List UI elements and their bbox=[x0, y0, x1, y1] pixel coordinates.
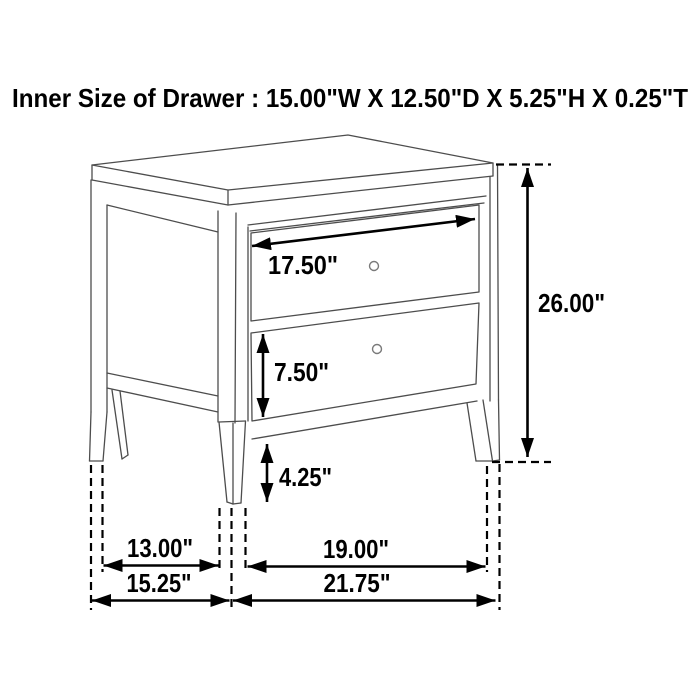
page-title: Inner Size of Drawer : 15.00"W X 12.50"D… bbox=[12, 83, 688, 113]
label-drawer-front-height: 7.50" bbox=[274, 357, 329, 387]
nightstand-dimension-diagram: Inner Size of Drawer : 15.00"W X 12.50"D… bbox=[0, 0, 700, 700]
bottom-drawer-knob-icon bbox=[373, 345, 382, 354]
top-drawer-knob-icon bbox=[370, 262, 379, 271]
label-leg-clearance: 4.25" bbox=[279, 462, 332, 492]
label-drawer-inner-width: 17.50" bbox=[268, 250, 338, 280]
label-overall-width: 21.75" bbox=[324, 568, 391, 598]
label-side-leg-span: 13.00" bbox=[127, 533, 193, 563]
label-overall-height: 26.00" bbox=[538, 288, 605, 318]
label-front-leg-span: 19.00" bbox=[323, 534, 389, 564]
label-overall-depth: 15.25" bbox=[127, 568, 192, 598]
dimension-diagram-page: Inner Size of Drawer : 15.00"W X 12.50"D… bbox=[0, 0, 700, 700]
